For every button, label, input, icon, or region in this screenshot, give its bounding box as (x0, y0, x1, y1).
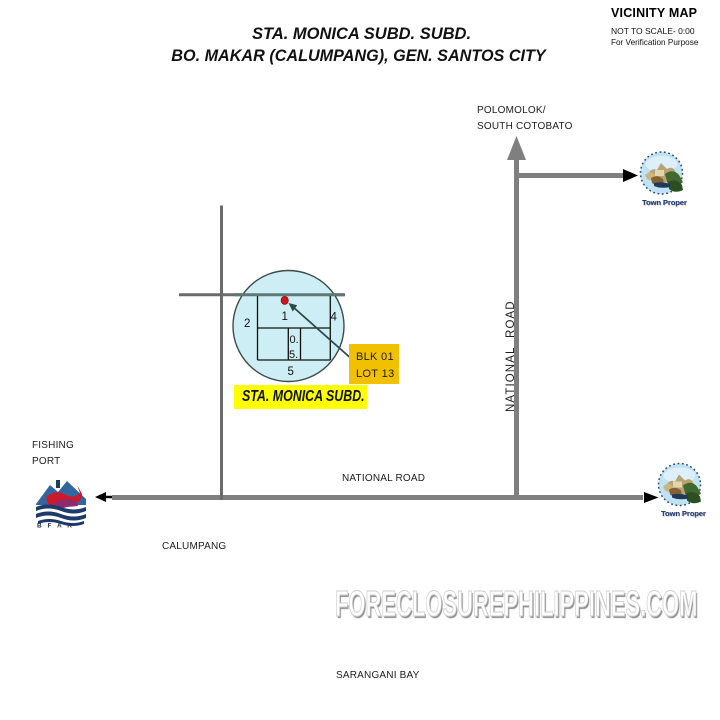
svg-text:1: 1 (282, 311, 288, 323)
svg-text:2: 2 (244, 318, 250, 330)
svg-text:5.: 5. (289, 349, 298, 361)
svg-text:B F A R: B F A R (37, 523, 74, 530)
svg-text:5: 5 (288, 366, 294, 378)
svg-text:0.: 0. (290, 334, 299, 346)
svg-text:4: 4 (331, 312, 338, 324)
